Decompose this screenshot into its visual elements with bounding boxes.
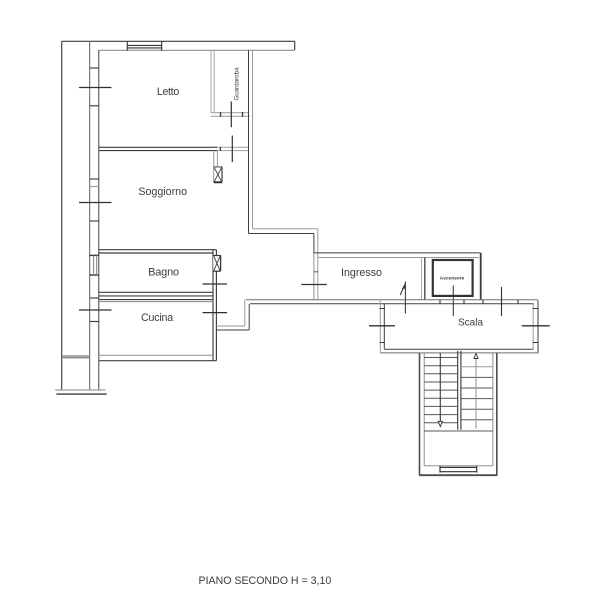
svg-text:Ascensore: Ascensore	[440, 275, 465, 281]
svg-text:Guardaroba: Guardaroba	[234, 67, 241, 101]
svg-text:Scala: Scala	[458, 318, 483, 329]
svg-text:Bagno: Bagno	[148, 266, 179, 278]
svg-text:Cucina: Cucina	[141, 312, 173, 324]
svg-text:Soggiorno: Soggiorno	[138, 186, 187, 198]
svg-text:Letto: Letto	[157, 86, 179, 98]
svg-text:PIANO SECONDO H = 3,10: PIANO SECONDO H = 3,10	[199, 575, 332, 587]
svg-text:Ingresso: Ingresso	[341, 267, 382, 279]
